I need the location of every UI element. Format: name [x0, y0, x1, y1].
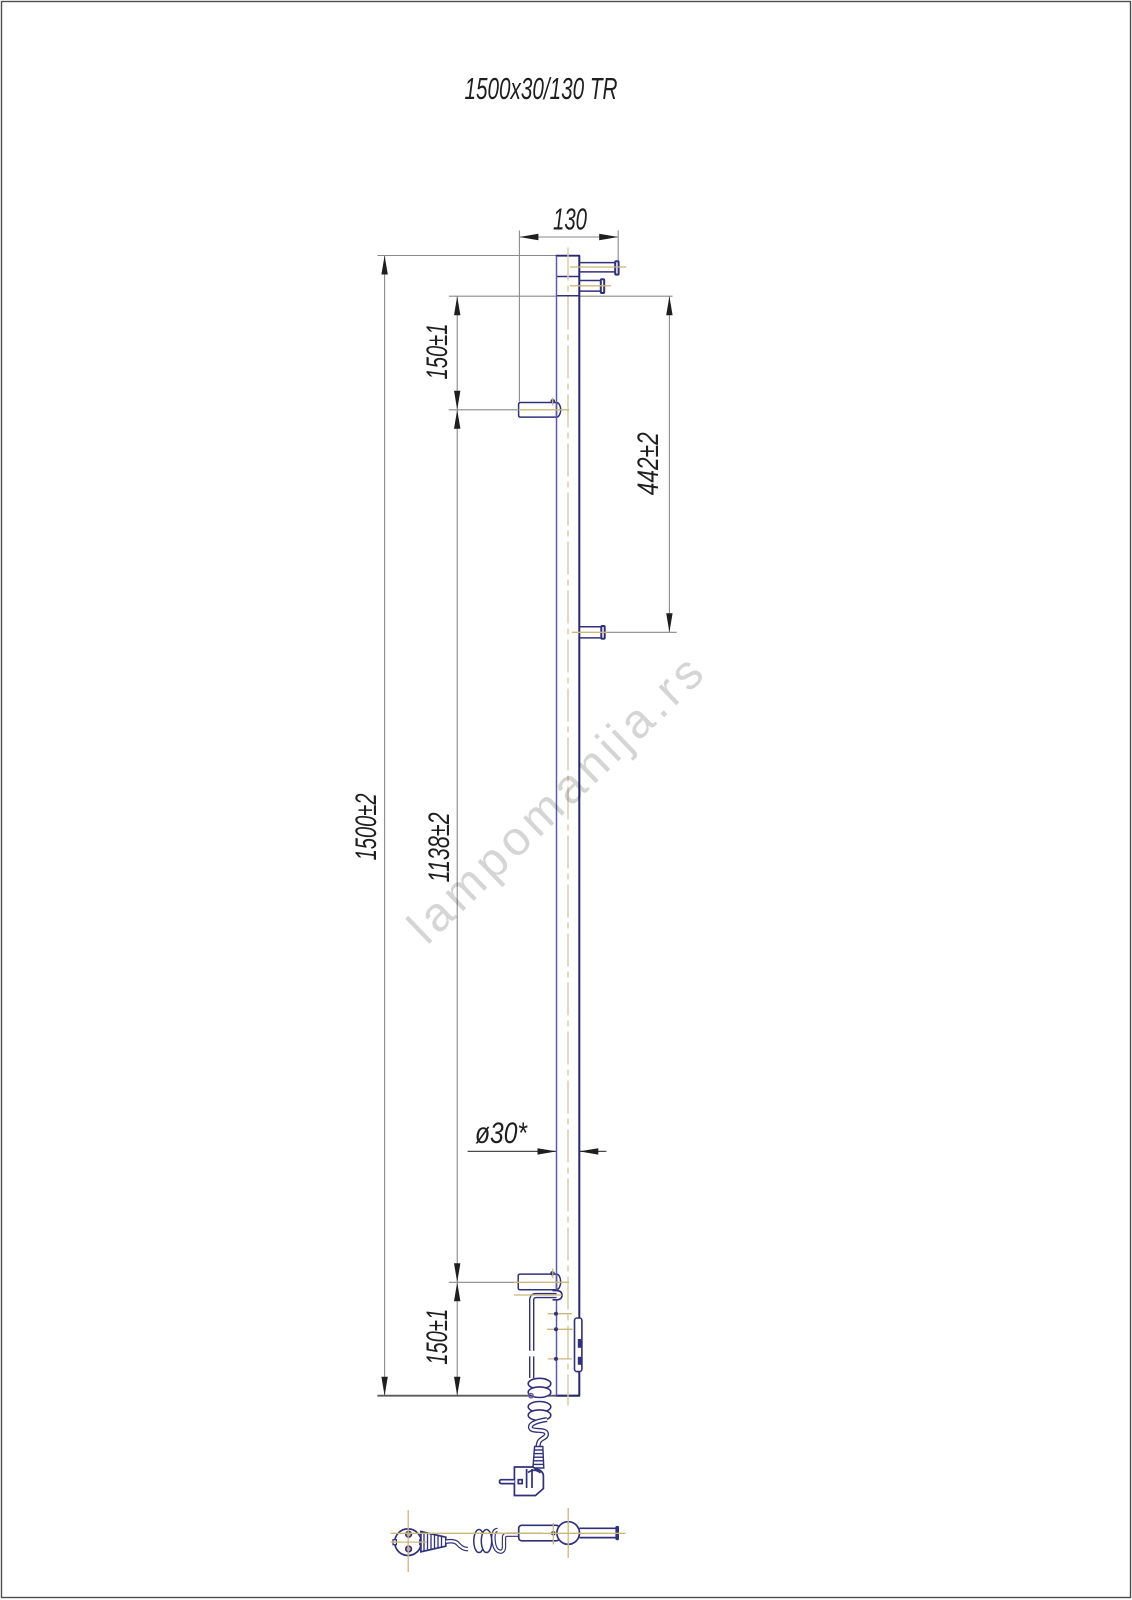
- svg-text:150±1: 150±1: [421, 324, 454, 380]
- svg-text:1500x30/130 TR: 1500x30/130 TR: [465, 71, 618, 106]
- svg-text:ø30*: ø30*: [475, 1117, 528, 1150]
- svg-text:442±2: 442±2: [632, 432, 665, 495]
- svg-text:130: 130: [553, 202, 587, 237]
- svg-text:150±1: 150±1: [421, 1309, 454, 1365]
- svg-text:1500±2: 1500±2: [350, 793, 383, 860]
